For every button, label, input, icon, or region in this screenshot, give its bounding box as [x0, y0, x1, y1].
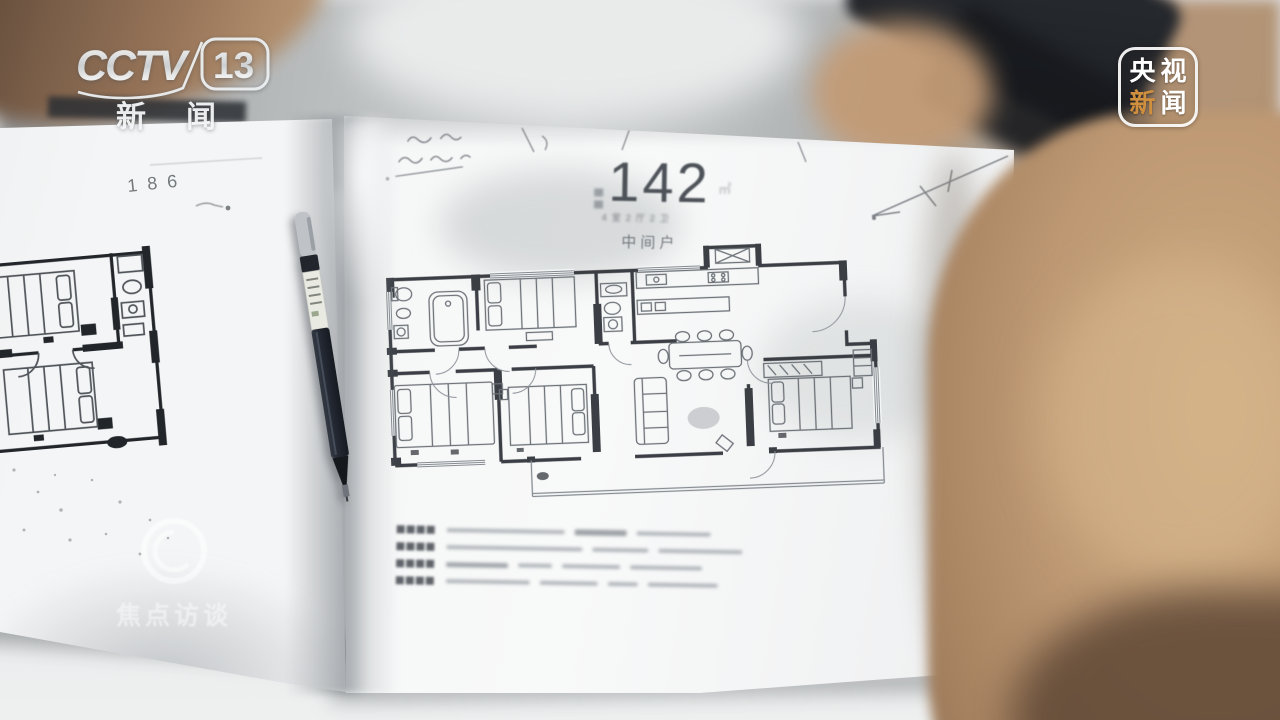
area-unit: ㎡	[718, 179, 731, 198]
area-value: 142	[608, 149, 712, 216]
row-text-blur	[447, 527, 711, 538]
row-text-blur	[446, 545, 742, 554]
logo-subtitle-char: 新	[116, 101, 146, 134]
main-floor-plan-drawing	[373, 236, 923, 517]
watermark-logo-icon	[144, 521, 204, 581]
spec-row	[396, 542, 716, 556]
channel-logo: CCTV 13 新 闻	[50, 28, 300, 136]
badge-char: 央	[1127, 55, 1158, 87]
badge-char-accent: 新	[1127, 87, 1158, 119]
watermark-label: 焦点访谈	[116, 601, 232, 630]
logo-subtitle-char: 闻	[186, 101, 216, 134]
handwritten-number: 186	[126, 170, 188, 196]
channel-number: 13	[213, 45, 254, 86]
pen-body	[311, 327, 349, 458]
spec-row	[397, 525, 717, 539]
row-label-blur	[396, 559, 434, 568]
badge-char: 闻	[1158, 87, 1189, 119]
spec-row	[396, 559, 716, 573]
area-prefix-blur	[594, 188, 604, 210]
badge-char: 视	[1158, 55, 1189, 87]
row-label-blur	[396, 576, 434, 585]
cctv-wordmark: CCTV	[76, 42, 190, 90]
pen-tip	[342, 484, 350, 497]
row-text-blur	[446, 562, 702, 571]
row-text-blur	[446, 579, 718, 588]
broadcast-frame: 186 焦点访谈	[0, 0, 1280, 720]
program-watermark: 焦点访谈	[104, 504, 254, 636]
row-label-blur	[396, 542, 434, 551]
spec-row	[396, 576, 716, 590]
area-specs: 4室2厅2卫	[602, 211, 674, 225]
spec-rows	[395, 525, 716, 617]
news-app-badge: 央 视 新 闻	[1118, 47, 1198, 127]
hand-holding-phone-blur	[812, 22, 992, 162]
row-label-blur	[397, 525, 435, 534]
